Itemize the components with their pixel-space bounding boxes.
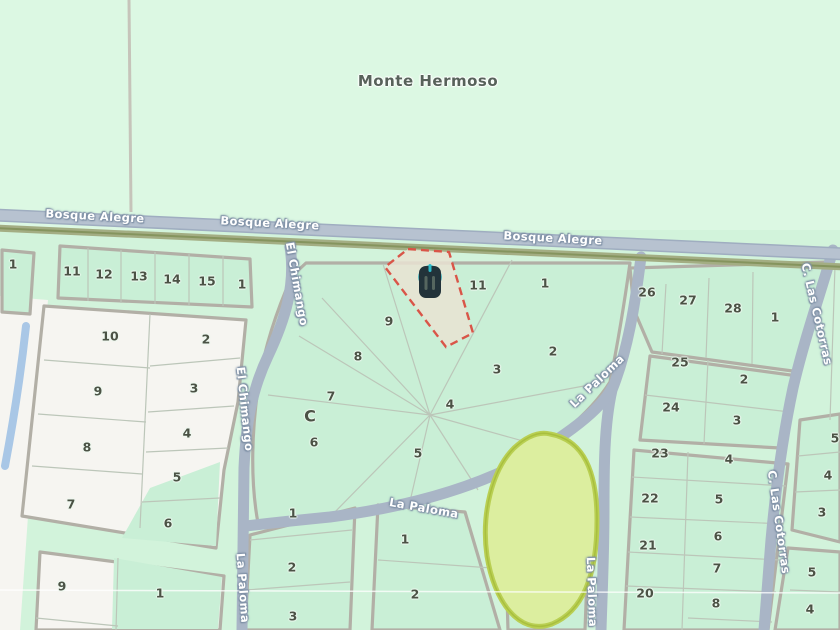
- pond: [485, 433, 597, 626]
- path-track: [129, 0, 131, 212]
- block: [2, 250, 34, 314]
- map-view[interactable]: Monte Hermoso C Bosque AlegreBosque Aleg…: [0, 0, 840, 630]
- property-marker[interactable]: [419, 264, 441, 298]
- block: [775, 548, 840, 630]
- map-base: [0, 0, 840, 630]
- block: [792, 414, 840, 542]
